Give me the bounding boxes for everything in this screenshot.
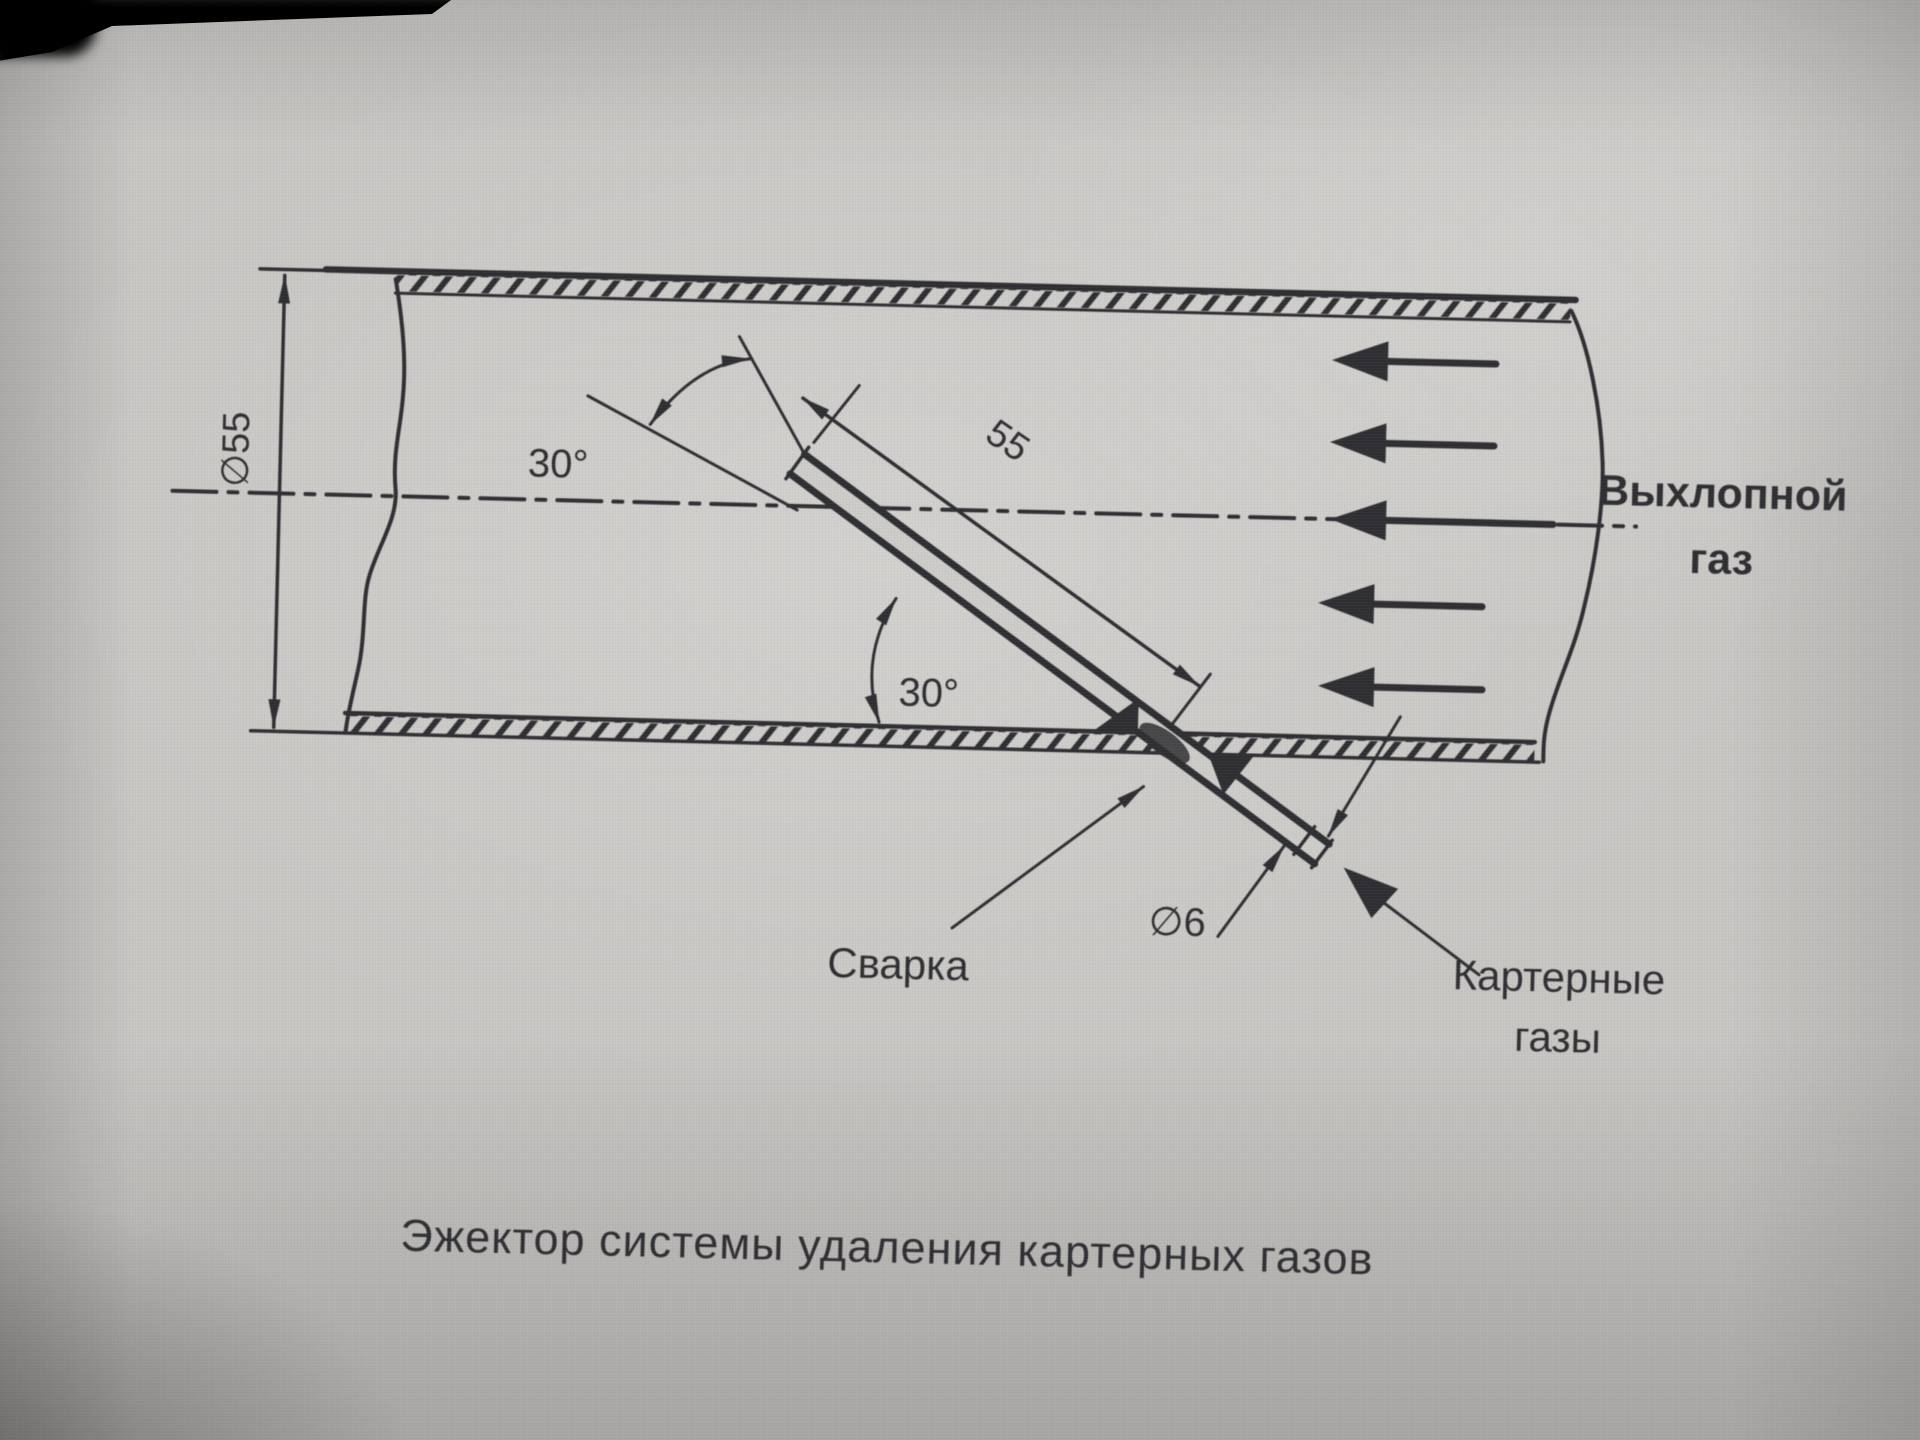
crankcase-label-line1: Картерные: [1452, 951, 1666, 1003]
upper-angle-arc: [650, 356, 750, 426]
weld-callout: Сварка: [827, 779, 1144, 994]
tube-length-dimension: 55: [795, 384, 1217, 732]
left-break-line: [346, 278, 407, 732]
flow-arrows: [1316, 340, 1558, 712]
crankcase-gases-callout: Картерные газы: [1339, 867, 1668, 1063]
lower-angle-label: 30°: [898, 671, 960, 716]
angle-reference-line: [585, 396, 800, 510]
ejector-tube: [777, 447, 1342, 868]
exhaust-label-line2: газ: [1689, 535, 1754, 585]
lower-angle-arc: [871, 598, 896, 723]
tube-diameter-label: ∅6: [1148, 900, 1206, 945]
crankcase-label-line2: газы: [1514, 1013, 1602, 1062]
pipe-diameter-dimension: ∅55: [209, 274, 285, 727]
weld-label: Сварка: [827, 939, 970, 989]
ejector-diagram: ∅55 30° 55 30°: [0, 0, 1920, 1440]
pipe-top-wall: [259, 268, 1575, 322]
figure-caption: Эжектор системы удаления картерных газов: [400, 1210, 1374, 1285]
upper-angle-label: 30°: [527, 441, 589, 486]
crankcase-arrow-icon: [1342, 867, 1398, 918]
pipe-diameter-label: ∅55: [215, 411, 259, 487]
screen-photo: ∅55 30° 55 30°: [0, 0, 1920, 1440]
pipe-bottom-wall: [251, 711, 1540, 762]
tube-length-label: 55: [978, 412, 1037, 471]
right-break-line: [1543, 310, 1606, 762]
exhaust-label-line1: Выхлопной: [1598, 467, 1848, 521]
tube-axis-extension: [737, 337, 808, 455]
